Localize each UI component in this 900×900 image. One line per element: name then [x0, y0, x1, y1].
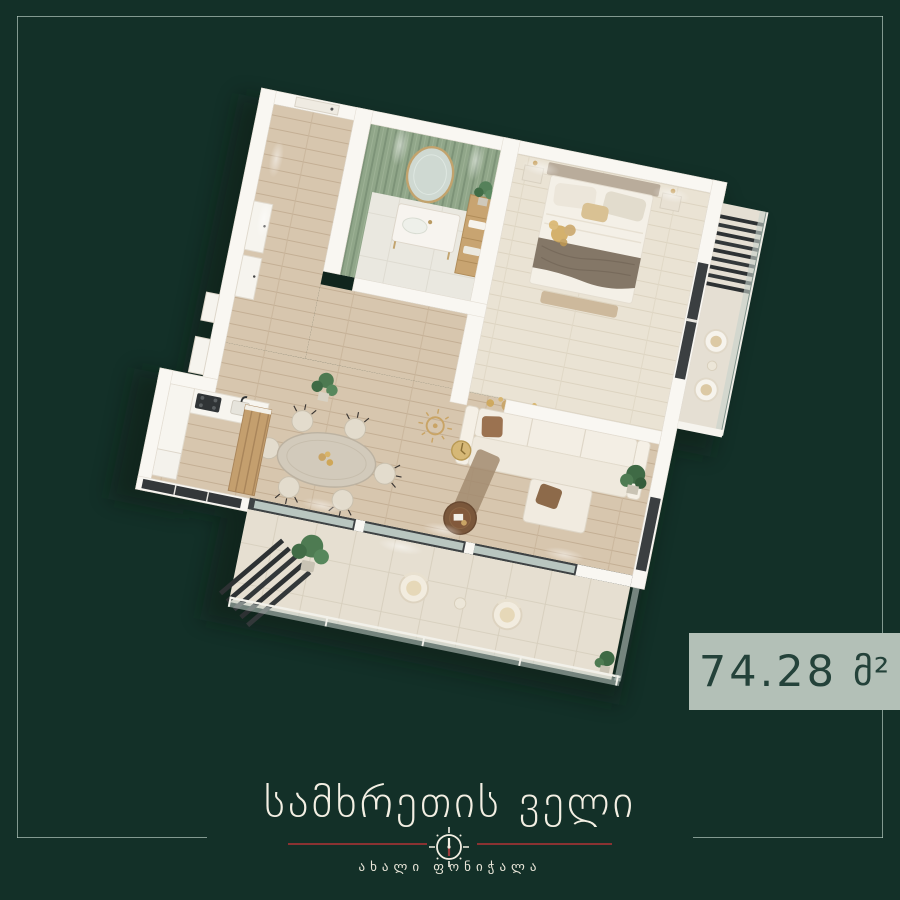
divider-line-left — [288, 843, 427, 845]
frame-border-top — [17, 16, 883, 17]
frame-border-right — [882, 16, 883, 838]
area-badge: 74.28 მ² — [689, 633, 900, 710]
area-value: 74.28 — [699, 647, 837, 697]
frame-border-bottom-right — [693, 837, 883, 838]
area-unit: მ² — [853, 650, 890, 694]
frame-border-bottom-left — [17, 837, 207, 838]
floor-plan-render — [0, 0, 900, 900]
project-title: სამხრეთის ველი — [0, 777, 900, 828]
compass-icon — [425, 822, 473, 872]
frame-border-left — [17, 16, 18, 838]
divider-line-right — [477, 843, 612, 845]
